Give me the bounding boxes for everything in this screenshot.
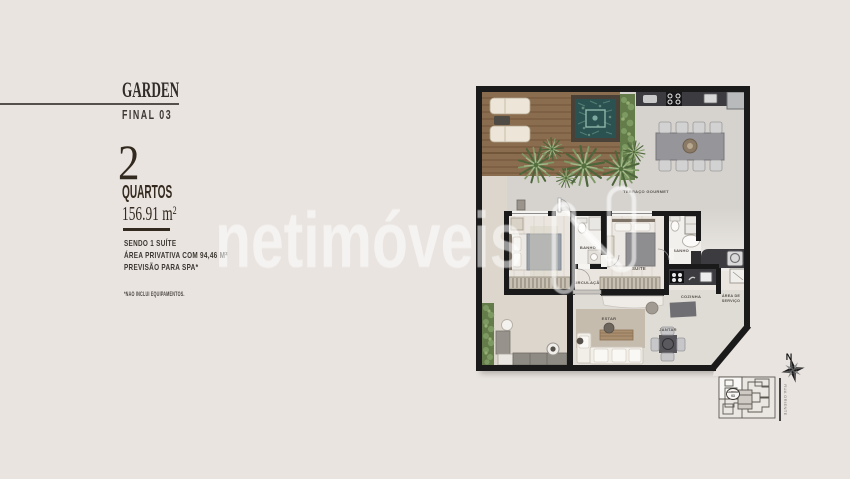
svg-text:JANTAR: JANTAR <box>659 327 677 332</box>
svg-text:SERVIÇO: SERVIÇO <box>722 299 740 303</box>
svg-text:03: 03 <box>731 394 735 398</box>
svg-text:COZINHA: COZINHA <box>681 294 701 299</box>
svg-text:ÁREA DE: ÁREA DE <box>722 293 741 298</box>
svg-text:RUA ORIENTE: RUA ORIENTE <box>783 384 788 416</box>
svg-text:BANHO: BANHO <box>673 248 689 253</box>
svg-text:ESTAR: ESTAR <box>602 316 617 321</box>
svg-text:N: N <box>786 352 793 362</box>
